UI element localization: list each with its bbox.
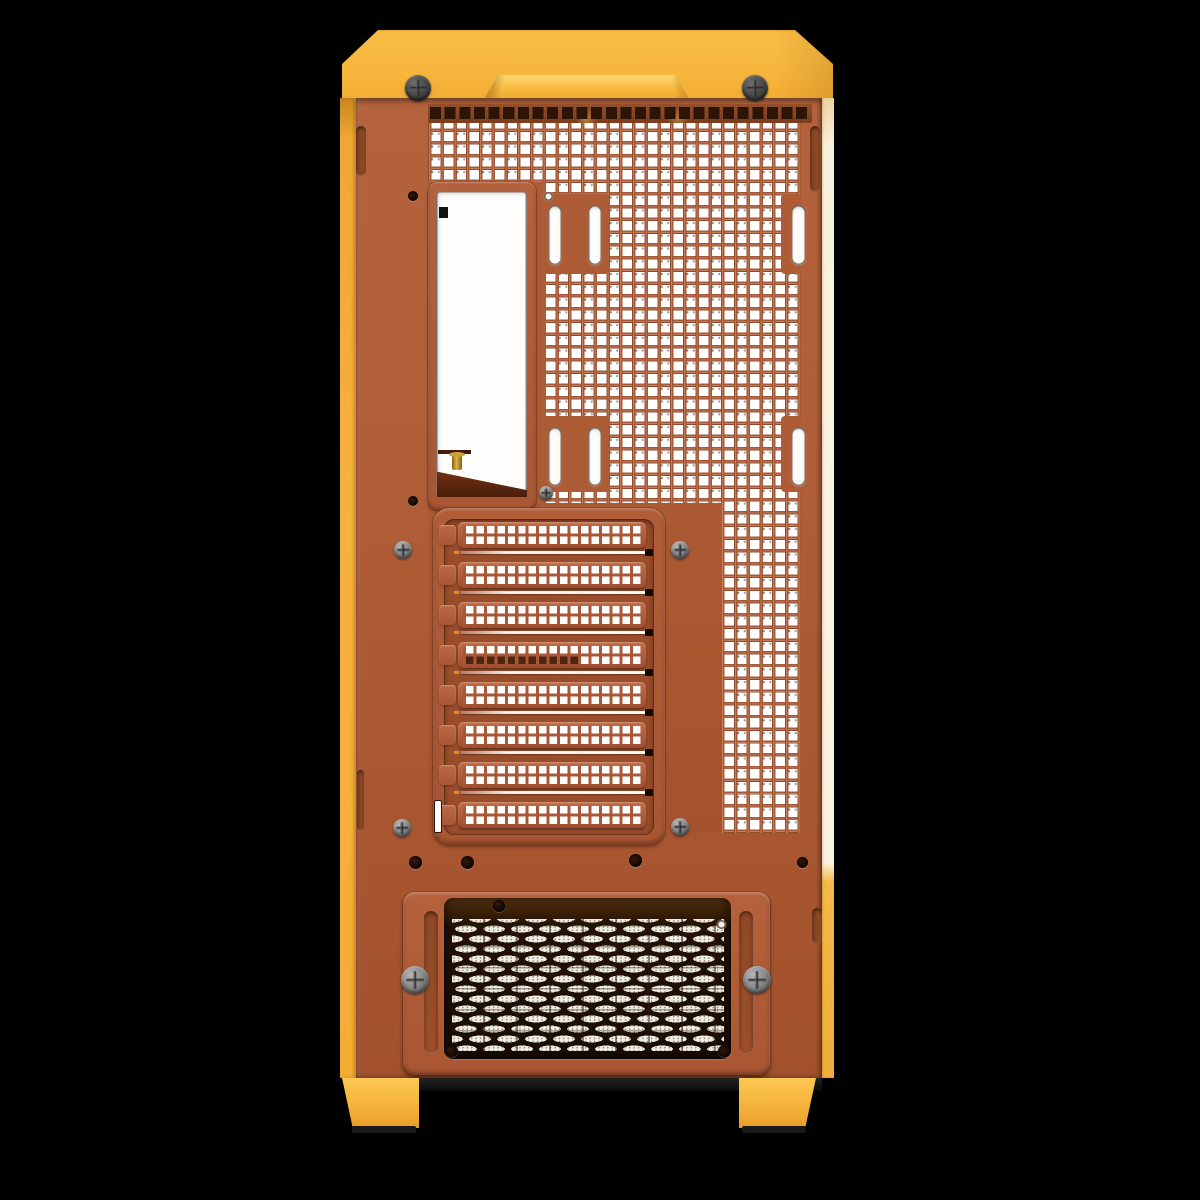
screw-hole: [409, 856, 422, 869]
slot-latch-hole: [645, 629, 653, 636]
psu-vent-mesh: [452, 919, 724, 1051]
slot-cover-vents: [463, 686, 641, 704]
screw-hole: [629, 854, 642, 867]
slot-latch-hole: [645, 749, 653, 756]
slot-gap-tick: [454, 591, 459, 594]
screw-hole: [797, 857, 808, 868]
slot-cover-vents: [463, 606, 641, 624]
screw-hole: [718, 1045, 731, 1057]
screw-hole: [408, 191, 418, 201]
top-vent-row: [428, 104, 812, 123]
slot-cover-vents: [463, 806, 641, 824]
fan-mount-slot: [791, 205, 806, 265]
slot-latch-hole: [645, 589, 653, 596]
fan-mount-slot: [588, 205, 602, 265]
through-hole: [717, 920, 726, 929]
slot-latch-hole: [645, 709, 653, 716]
expansion-slot-cover: [458, 722, 646, 748]
slot-separator-gap: [460, 671, 652, 674]
expansion-slot-cover: [458, 602, 646, 628]
slot-gap-tick: [454, 791, 459, 794]
pci-bracket-tab: [439, 645, 456, 665]
psu-thumbscrew: [401, 966, 429, 994]
top-cover-thumbscrew: [405, 75, 431, 101]
panel-screw: [394, 541, 412, 559]
slot-separator-gap: [460, 751, 652, 754]
pci-bracket-tab: [439, 765, 456, 785]
cable-slot: [434, 800, 442, 833]
top-vent-squares: [430, 107, 810, 119]
expansion-slot-cover: [458, 642, 646, 668]
fan-mount-slot: [791, 427, 806, 486]
slot-gap-tick: [454, 551, 459, 554]
gpu-bracket-brass-standoff: [452, 455, 462, 470]
slot-separator-gap: [460, 791, 652, 794]
top-cover-thumbscrew: [742, 75, 768, 101]
slot-latch-hole: [645, 549, 653, 556]
slot-cover-vents: [463, 526, 641, 544]
left-side-panel-edge: [340, 98, 357, 1078]
io-cutout-detail: [439, 207, 448, 218]
expansion-slot-cover: [458, 802, 646, 828]
edge-recess-slot: [810, 126, 820, 192]
fan-mount-slot: [548, 205, 562, 265]
edge-recess-slot: [357, 770, 364, 830]
slot-cover-vents: [463, 646, 641, 664]
slot-separator-gap: [460, 631, 652, 634]
top-cover-latch-bump: [483, 75, 690, 100]
slot-cover-vents: [463, 566, 641, 584]
gpu-bracket-standoff-cap: [449, 452, 465, 457]
panel-screw: [539, 486, 553, 500]
pci-bracket-tab: [439, 525, 456, 545]
through-hole: [544, 192, 553, 201]
panel-screw: [393, 819, 411, 837]
slot-gap-tick: [454, 751, 459, 754]
slot-separator-gap: [460, 711, 652, 714]
screw-hole: [408, 496, 418, 506]
case-foot-pad-right: [742, 1126, 806, 1133]
edge-recess-slot: [812, 908, 822, 944]
slot-cover-vents: [463, 766, 641, 784]
screw-hole: [493, 900, 505, 912]
expansion-slot-cover: [458, 522, 646, 548]
panel-screw: [671, 818, 689, 836]
fan-mount-slot: [548, 427, 562, 486]
fan-mount-slot: [588, 427, 602, 486]
panel-screw: [671, 541, 689, 559]
expansion-slot-cover: [458, 562, 646, 588]
slot-gap-tick: [454, 711, 459, 714]
right-side-panel-edge: [821, 98, 834, 1078]
screw-hole: [445, 1045, 458, 1057]
slot-separator-gap: [460, 551, 652, 554]
slot-cover-vents: [463, 726, 641, 744]
slot-latch-hole: [645, 789, 653, 796]
psu-thumbscrew: [743, 966, 771, 994]
case-foot-right: [739, 1078, 816, 1128]
case-foot-pad-left: [352, 1126, 416, 1133]
screw-hole: [461, 856, 474, 869]
slot-latch-hole: [645, 669, 653, 676]
pci-bracket-tab: [439, 565, 456, 585]
pci-bracket-tab: [439, 725, 456, 745]
slot-gap-tick: [454, 671, 459, 674]
edge-recess-slot: [356, 126, 366, 176]
case-foot-left: [342, 1078, 419, 1128]
expansion-slot-cover: [458, 682, 646, 708]
render-stage: [0, 0, 1200, 1200]
pci-bracket-tab: [439, 685, 456, 705]
expansion-slot-cover: [458, 762, 646, 788]
pci-bracket-tab: [439, 605, 456, 625]
slot-gap-tick: [454, 631, 459, 634]
slot-separator-gap: [460, 591, 652, 594]
